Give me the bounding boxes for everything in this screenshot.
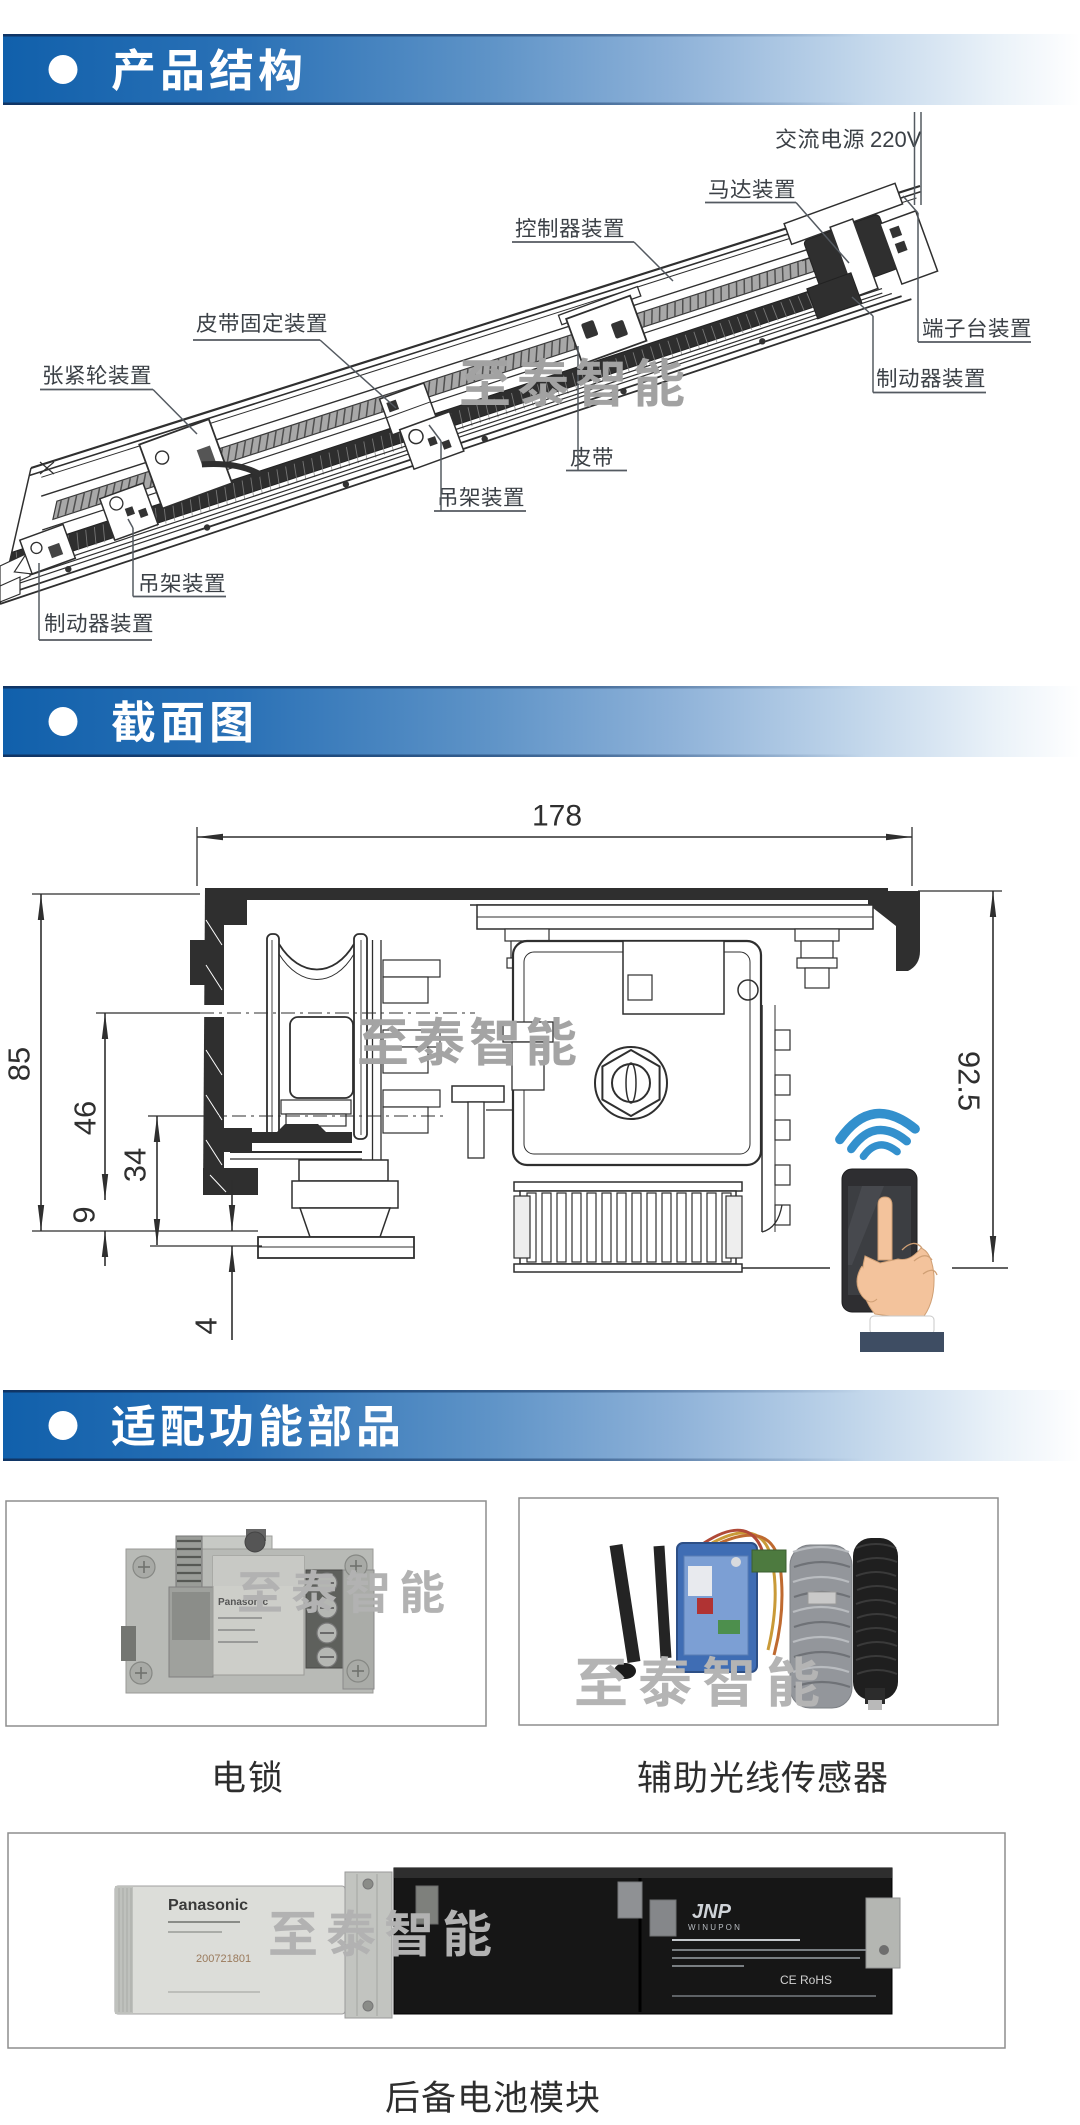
svg-text:9: 9 xyxy=(67,1206,102,1223)
svg-text:Panasonic: Panasonic xyxy=(168,1897,248,1914)
svg-text:178: 178 xyxy=(532,800,582,833)
svg-text:46: 46 xyxy=(68,1101,103,1135)
svg-text:4: 4 xyxy=(189,1317,224,1334)
svg-text:JNP: JNP xyxy=(692,1901,732,1923)
svg-text:34: 34 xyxy=(118,1148,153,1182)
svg-text:CE RoHS: CE RoHS xyxy=(780,1973,832,1987)
svg-text:200721801: 200721801 xyxy=(196,1953,251,1965)
svg-text:85: 85 xyxy=(2,1047,37,1081)
svg-text:W I N U P O N: W I N U P O N xyxy=(688,1923,740,1932)
svg-text:92.5: 92.5 xyxy=(952,1051,987,1111)
